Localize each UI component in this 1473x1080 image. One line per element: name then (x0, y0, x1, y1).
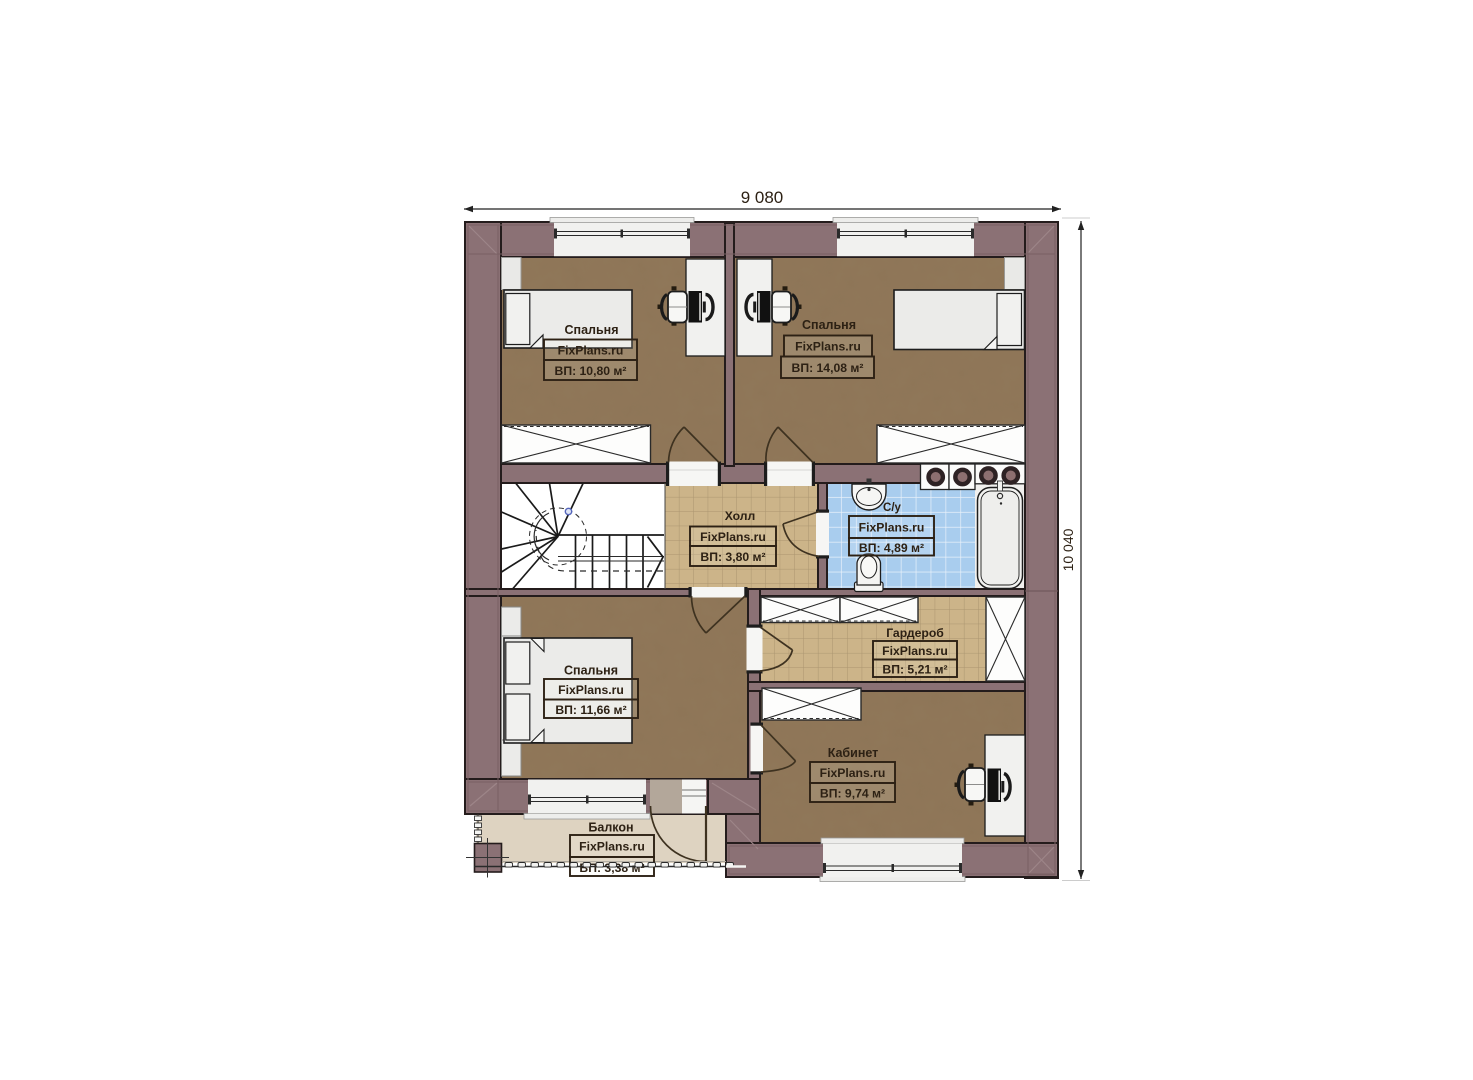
svg-text:ВП: 4,89 м²: ВП: 4,89 м² (859, 541, 924, 555)
svg-text:Спальня: Спальня (564, 664, 618, 678)
svg-text:Спальня: Спальня (565, 323, 619, 337)
svg-text:10 040: 10 040 (1060, 528, 1076, 571)
svg-text:ВП: 5,21 м²: ВП: 5,21 м² (882, 662, 947, 676)
svg-text:FixPlans.ru: FixPlans.ru (859, 521, 925, 535)
svg-text:FixPlans.ru: FixPlans.ru (579, 840, 645, 854)
svg-text:ВП: 14,08 м²: ВП: 14,08 м² (792, 361, 864, 375)
svg-text:Холл: Холл (725, 509, 756, 523)
svg-text:FixPlans.ru: FixPlans.ru (558, 683, 624, 697)
svg-text:ВП: 10,80 м²: ВП: 10,80 м² (555, 364, 627, 378)
svg-text:С/у: С/у (883, 502, 902, 514)
svg-text:Кабинет: Кабинет (828, 746, 879, 760)
svg-text:FixPlans.ru: FixPlans.ru (558, 344, 624, 358)
svg-text:ВП: 9,74 м²: ВП: 9,74 м² (820, 787, 885, 801)
svg-text:ВП: 3,80 м²: ВП: 3,80 м² (700, 550, 765, 564)
svg-text:9 080: 9 080 (741, 188, 784, 207)
svg-text:Балкон: Балкон (588, 821, 633, 835)
svg-text:Спальня: Спальня (802, 318, 856, 332)
svg-text:FixPlans.ru: FixPlans.ru (700, 530, 766, 544)
svg-text:FixPlans.ru: FixPlans.ru (795, 340, 861, 354)
svg-text:FixPlans.ru: FixPlans.ru (820, 766, 886, 780)
svg-text:FixPlans.ru: FixPlans.ru (882, 644, 948, 658)
svg-text:ВП: 11,66 м²: ВП: 11,66 м² (555, 703, 626, 717)
svg-text:Гардероб: Гардероб (886, 626, 944, 640)
